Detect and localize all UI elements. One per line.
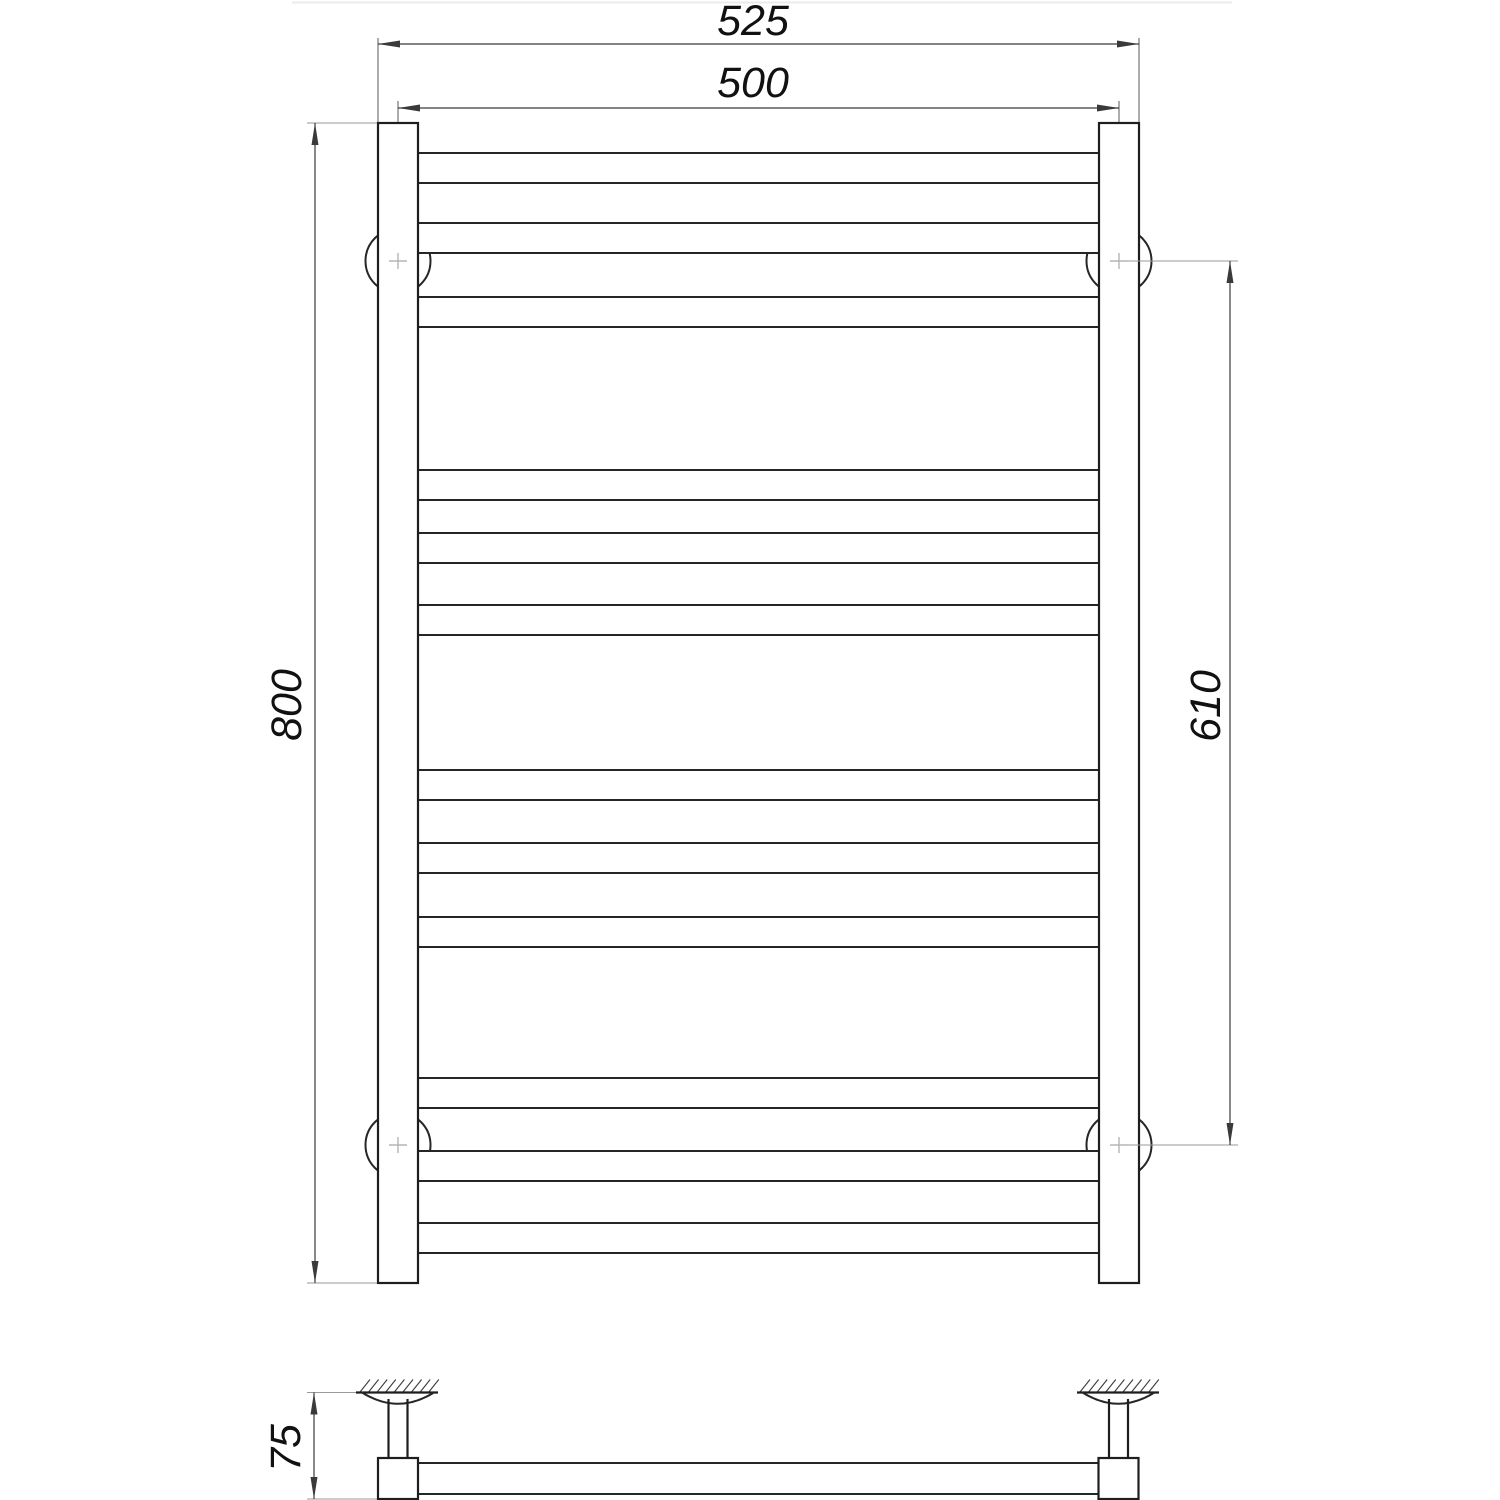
hatch-stroke [386,1380,396,1393]
hatch-stroke [1097,1380,1107,1393]
arrowhead-left [378,41,400,48]
dimension-label-bracket-spacing: 610 [1182,670,1230,742]
dimension-bracket-spacing: 610 [1128,261,1238,1145]
left-rail [378,123,418,1283]
wall-hatch-right [1080,1380,1159,1393]
hatch-stroke [1114,1380,1124,1393]
bracket-cross-marks [389,253,1128,1153]
hatch-stroke [1149,1380,1159,1393]
technical-drawing-canvas: 525 500 800 610 [0,0,1500,1500]
dimension-label-overall-height: 800 [263,669,311,741]
arrowhead-bottom [1227,1123,1234,1145]
rung [400,843,1117,873]
wall-hatch-left [360,1380,439,1393]
side-left-mount [356,1380,439,1460]
hatch-stroke [360,1380,370,1393]
arrowhead-top [1227,261,1234,283]
dimension-label-axis-width: 500 [717,59,789,107]
dimension-wall-offset: 75 [262,1393,377,1500]
arrowhead-bottom [311,1477,318,1499]
hatch-stroke [377,1380,387,1393]
hatch-stroke [1080,1380,1090,1393]
front-view [366,123,1152,1283]
hatch-stroke [369,1380,379,1393]
rung [400,1078,1117,1108]
arrowhead-bottom [312,1261,319,1283]
rung [400,470,1117,500]
arrowhead-top [311,1393,318,1415]
bracket-circles [366,229,1152,1178]
dimension-axis-width: 500 [398,59,1119,122]
hatch-stroke [1106,1380,1116,1393]
hatch-stroke [1123,1380,1133,1393]
hatch-stroke [1140,1380,1150,1393]
arrowhead-right [1097,105,1119,112]
rung [400,605,1117,635]
rung [400,917,1117,947]
escutcheon-left [362,1393,434,1404]
hatch-stroke [1132,1380,1142,1393]
hatch-stroke [420,1380,430,1393]
side-right-mount [1077,1380,1159,1460]
hatch-stroke [1089,1380,1099,1393]
towel-rail-drawing: 525 500 800 610 [0,0,1500,1500]
escutcheon-right [1083,1393,1155,1404]
rung [400,223,1117,253]
arrowhead-top [312,123,319,145]
hatch-stroke [429,1380,439,1393]
rung [400,1223,1117,1253]
dimension-label-overall-width: 525 [717,0,790,45]
hatch-stroke [412,1380,422,1393]
side-foot-right [1099,1458,1139,1499]
rungs [400,153,1117,1253]
rung [400,770,1117,800]
arrowhead-left [398,105,420,112]
side-bar [408,1463,1108,1494]
right-rail [1099,123,1139,1283]
rung [400,1151,1117,1181]
rung [400,153,1117,183]
dimension-overall-height: 800 [263,123,377,1283]
hatch-stroke [394,1380,404,1393]
hatch-stroke [403,1380,413,1393]
dimension-label-wall-offset: 75 [262,1423,310,1472]
rung [400,533,1117,563]
rung [400,297,1117,327]
side-foot-left [378,1458,418,1499]
side-view [356,1380,1159,1500]
arrowhead-right [1117,41,1139,48]
